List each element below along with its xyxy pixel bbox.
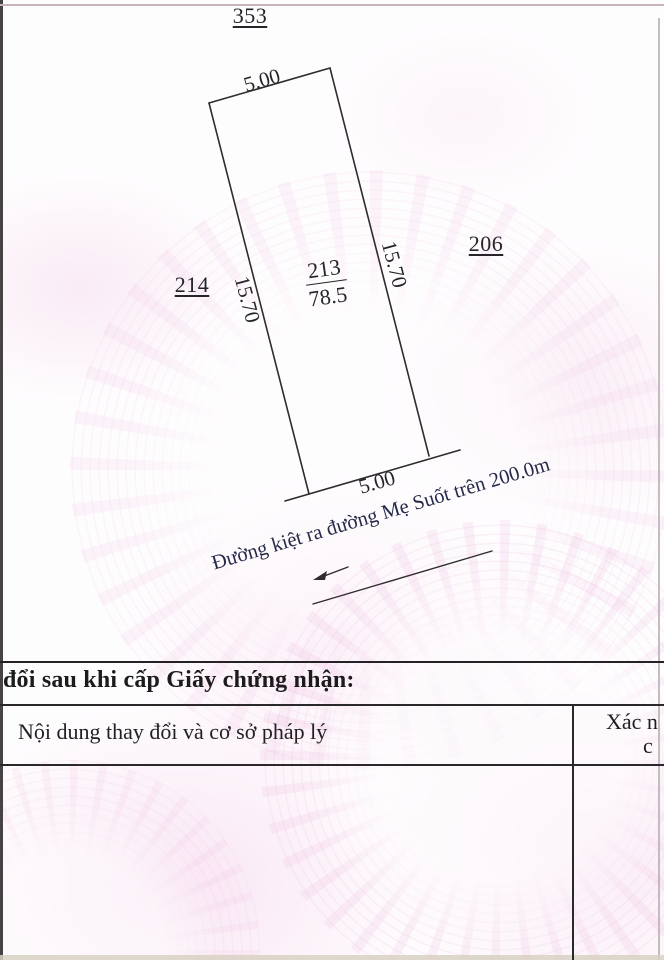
neighbor-plot-top: 353: [228, 3, 272, 29]
table-col2-header-line1: Xác n: [606, 709, 658, 735]
table-column-divider: [572, 704, 574, 960]
table-top-border: [0, 704, 664, 706]
neighbor-plot-left: 214: [172, 272, 212, 298]
parcel-label: 213 78.5: [294, 253, 359, 313]
road-line: [313, 551, 492, 604]
section-top-rule: [0, 661, 664, 663]
table-col2-header-line2: c: [643, 733, 653, 759]
section-heading: đổi sau khi cấp Giấy chứng nhận:: [3, 667, 355, 694]
neighbor-plot-right: 206: [464, 231, 508, 257]
table-col1-header: Nội dung thay đổi và cơ sở pháp lý: [18, 719, 327, 745]
direction-arrow-head-icon: [313, 571, 327, 580]
parcel-sketch: [0, 0, 664, 960]
certificate-page: 353 5.00 214 15.70 15.70 206 5.00 213 78…: [0, 0, 664, 960]
table-header-bottom-border: [0, 764, 664, 766]
